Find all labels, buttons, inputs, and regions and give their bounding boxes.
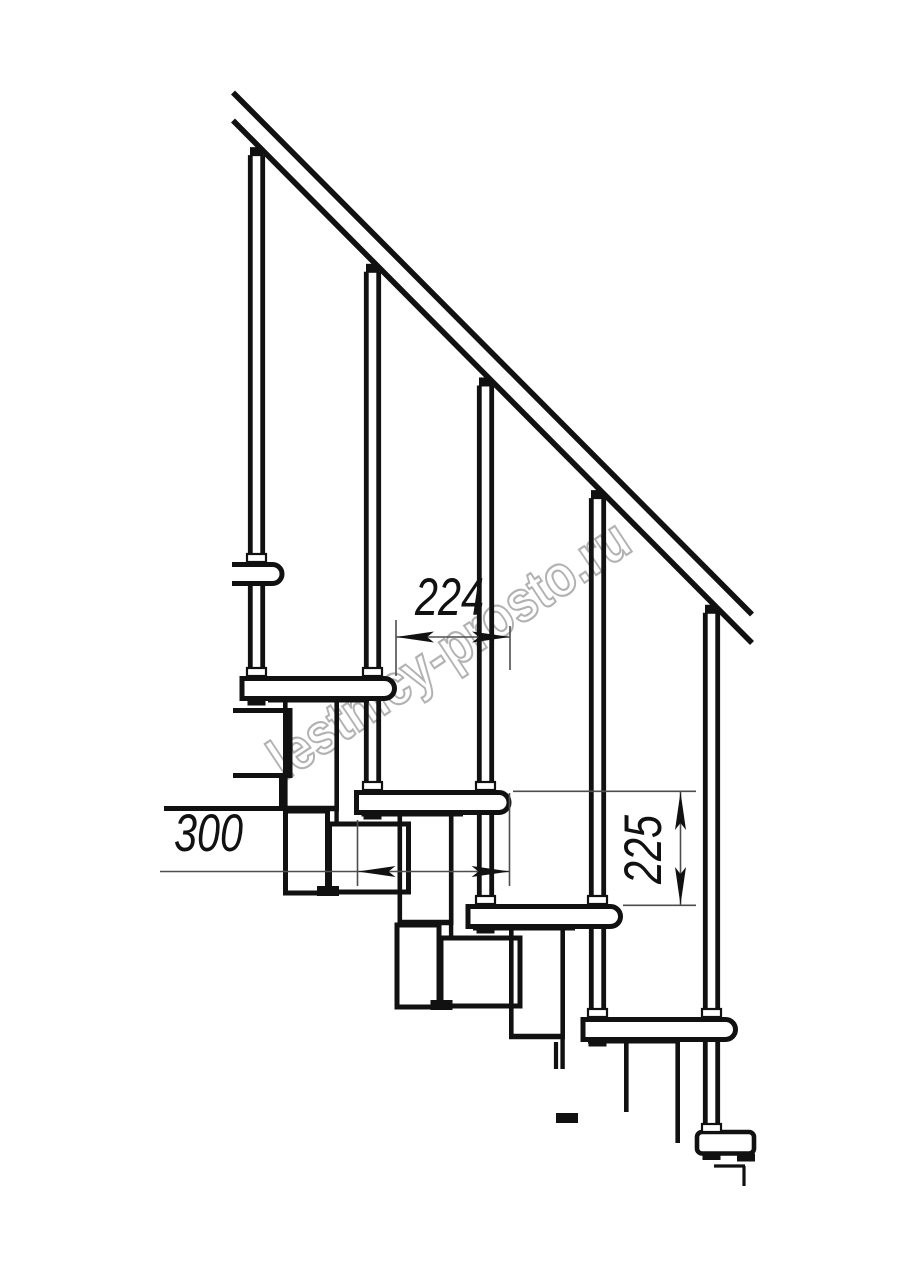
svg-text:224: 224 <box>414 568 484 627</box>
svg-text:225: 225 <box>614 815 673 885</box>
svg-text:300: 300 <box>174 804 243 863</box>
